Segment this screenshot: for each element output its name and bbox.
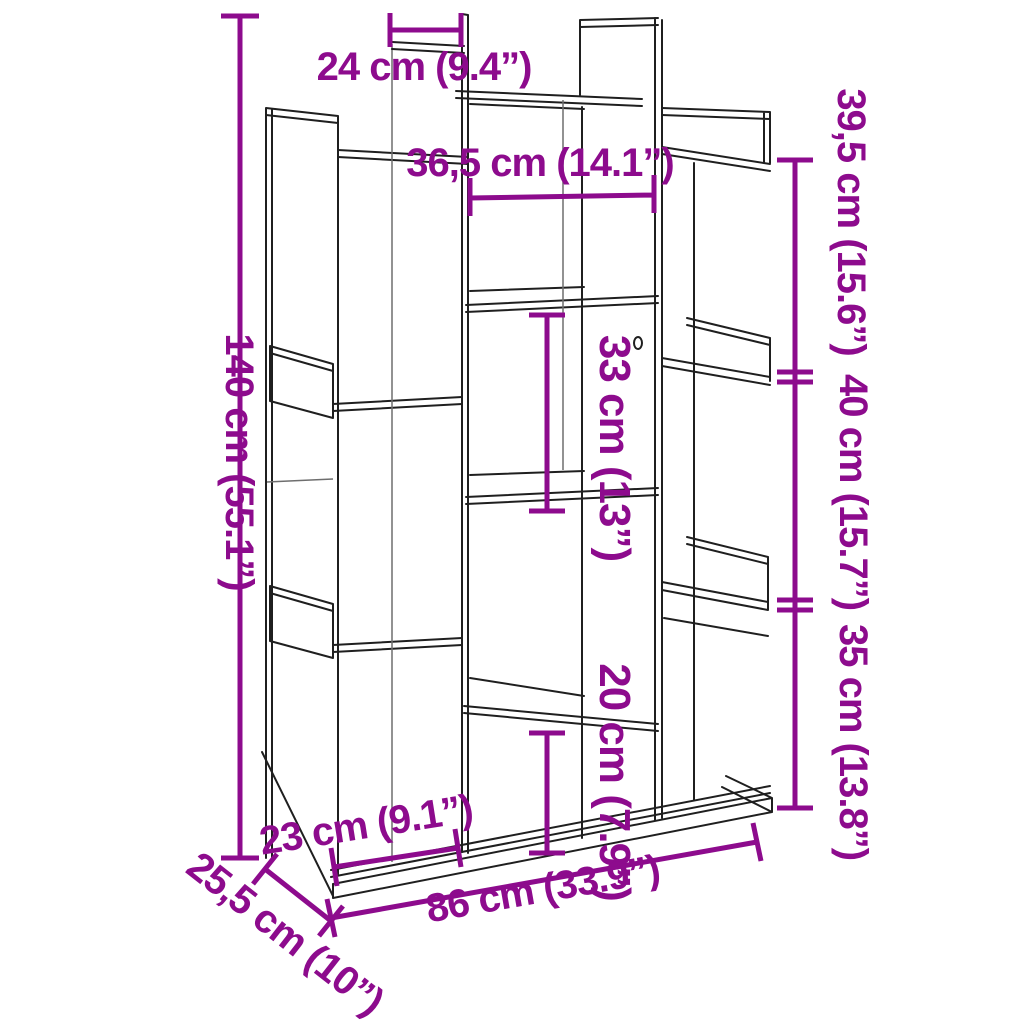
label-middle-cubby-height: 33 cm (13”) [590, 335, 639, 561]
left-panel [266, 108, 338, 874]
label-right-upper-height: 39,5 cm (15.6”) [829, 88, 873, 355]
right-shelves [662, 108, 770, 636]
left-shelves [270, 150, 468, 658]
dim-right-heights [777, 160, 813, 808]
dim-middle-cubby-height [529, 315, 565, 511]
label-top-cubby-width: 24 cm (9.4”) [317, 45, 532, 89]
dim-lower-middle-height [529, 733, 565, 853]
label-upper-middle-width: 36,5 cm (14.1”) [406, 141, 673, 185]
label-right-lower-height: 35 cm (13.8”) [831, 624, 875, 860]
label-height-total: 140 cm (55.1”) [217, 333, 261, 590]
dimension-labels: 24 cm (9.4”) 36,5 cm (14.1”) 39,5 cm (15… [178, 45, 875, 1024]
dimension-diagram: 24 cm (9.4”) 36,5 cm (14.1”) 39,5 cm (15… [0, 0, 1024, 1024]
tall-thin-panel [462, 14, 468, 853]
label-right-middle-height: 40 cm (15.7”) [831, 374, 875, 610]
bookshelf-dimension-drawing: 24 cm (9.4”) 36,5 cm (14.1”) 39,5 cm (15… [0, 0, 1024, 1024]
